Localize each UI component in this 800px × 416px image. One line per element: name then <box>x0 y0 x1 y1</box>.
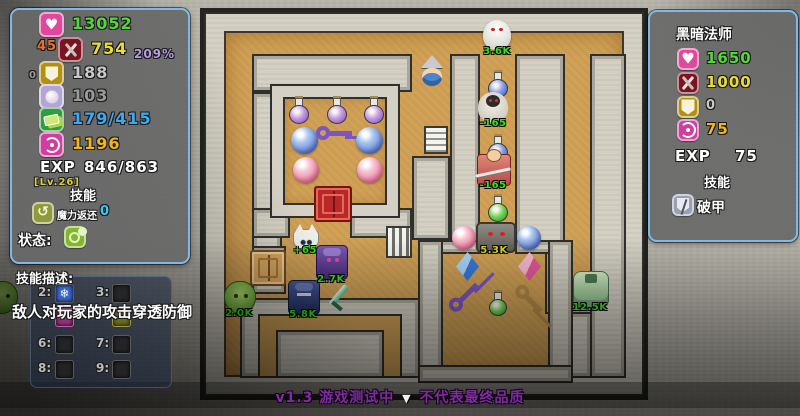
enemy-skill-name: 破甲 <box>697 197 725 217</box>
item-potion-purple-3 <box>364 98 384 124</box>
player-witch <box>418 56 446 90</box>
stairs-lower <box>386 226 412 258</box>
enemy-ghost-white-label: 3.6K <box>483 46 510 57</box>
enemy-exp-label: EXP <box>675 147 711 165</box>
stairs-upper <box>424 126 448 154</box>
gold-icon <box>39 107 64 132</box>
magic-orb-icon <box>39 84 64 109</box>
enemy-golem-green-label: 12.5K <box>573 302 608 313</box>
player-stats-panel: 13052 45 754 209% 0 188 103 179/415 1196… <box>10 8 190 264</box>
spirit-icon <box>39 132 64 157</box>
caret-down-icon: ▼ <box>402 392 411 405</box>
enemy-attack-value: 1000 <box>706 73 752 91</box>
attack-icon <box>677 72 699 94</box>
slot-key-8: 8: <box>38 361 51 375</box>
item-sword-green <box>324 283 348 310</box>
player-attack-percent: 209% <box>134 47 175 61</box>
enemy-warrior-red-label: -165 <box>479 180 506 191</box>
enemy-ghost-dark-label: -165 <box>479 118 506 129</box>
slot-key-2: 2: <box>38 285 51 299</box>
item-orb-blue-1 <box>291 127 318 154</box>
skill-slot-8[interactable] <box>55 360 74 379</box>
game-screen: 3.6K-165-165+652.7K2.0K5.8K5.3K12.5K 130… <box>0 0 800 416</box>
mana-return-icon <box>32 202 54 224</box>
item-orb-pink-2 <box>357 157 383 183</box>
status-buff-icon <box>64 226 86 248</box>
heart-icon <box>39 12 64 37</box>
heart-icon <box>677 48 699 70</box>
item-orb-blue-3 <box>517 226 541 250</box>
player-defense-buff: 0 <box>29 70 37 81</box>
player-hp-value: 13052 <box>72 14 133 33</box>
item-potion-green-1 <box>488 196 508 222</box>
enemy-name: 黑暗法师 <box>676 24 732 44</box>
enemy-stats-panel: 黑暗法师 1650 1000 0 75 EXP 75 技能 破甲 <box>648 10 798 242</box>
shield-icon <box>677 96 699 118</box>
player-gold-value: 179/415 <box>72 109 152 128</box>
attack-icon <box>58 37 83 62</box>
enemy-golem-stone-label: 5.3K <box>480 245 507 256</box>
item-key-bronze-diag <box>507 278 549 320</box>
status-label: 状态: <box>18 230 52 250</box>
player-attack-value: 754 <box>91 39 127 58</box>
enemy-spirit-value: 75 <box>706 120 729 138</box>
skill-tooltip-text: 敌人对玩家的攻击穿透防御 <box>12 301 192 322</box>
player-defense-value: 188 <box>72 63 108 82</box>
spirit-icon <box>677 119 699 141</box>
enemy-cat-white-label: +65 <box>293 245 317 256</box>
armor-break-icon <box>672 194 694 216</box>
skill-slot-9[interactable] <box>112 360 131 379</box>
footer-version-line: v1.3 游戏测试中 ▼ 不代表最终品质 <box>0 387 800 407</box>
enemy-slime-green-label: 2.0K <box>225 308 252 319</box>
item-key-purple-diag <box>441 277 485 321</box>
skill-slot-6[interactable] <box>55 335 74 354</box>
item-crystal-blue <box>456 252 479 281</box>
item-crystal-pink <box>518 252 541 281</box>
player-skills-title: 技能 <box>70 185 96 204</box>
enemy-exp-value: 75 <box>735 147 758 165</box>
player-mdef-value: 103 <box>72 86 108 105</box>
quality-note-text: 不代表最终品质 <box>420 390 525 406</box>
slot-key-3: 3: <box>96 285 109 299</box>
enemy-hp-value: 1650 <box>706 49 752 67</box>
enemy-knight-blue-label: 5.8K <box>289 309 316 320</box>
item-orb-pink-3 <box>452 226 476 250</box>
player-attack-buff: 45 <box>37 39 57 54</box>
item-potion-green-2 <box>489 292 507 316</box>
mana-return-value: 0 <box>100 204 110 219</box>
player-spirit-value: 1196 <box>72 134 121 153</box>
enemy-defense-value: 0 <box>706 98 716 113</box>
slot-key-9: 9: <box>96 361 109 375</box>
player-exp-label: EXP <box>40 158 76 176</box>
item-potion-purple-1 <box>289 98 309 124</box>
slot-key-7: 7: <box>96 336 109 350</box>
item-orb-pink-1 <box>293 157 319 183</box>
slot-key-6: 6: <box>38 336 51 350</box>
gate-tan <box>250 250 286 286</box>
gate-red <box>314 186 352 222</box>
enemy-skills-title: 技能 <box>704 172 730 191</box>
skill-slot-7[interactable] <box>112 335 131 354</box>
shield-icon <box>39 61 64 86</box>
item-key-purple <box>316 121 354 147</box>
player-exp-value: 846/863 <box>84 158 159 176</box>
enemy-knight-purple-label: 2.7K <box>317 274 344 285</box>
item-orb-blue-2 <box>356 127 383 154</box>
mana-return-label: 魔力返还 <box>57 207 97 222</box>
version-text: v1.3 游戏测试中 <box>275 390 394 406</box>
